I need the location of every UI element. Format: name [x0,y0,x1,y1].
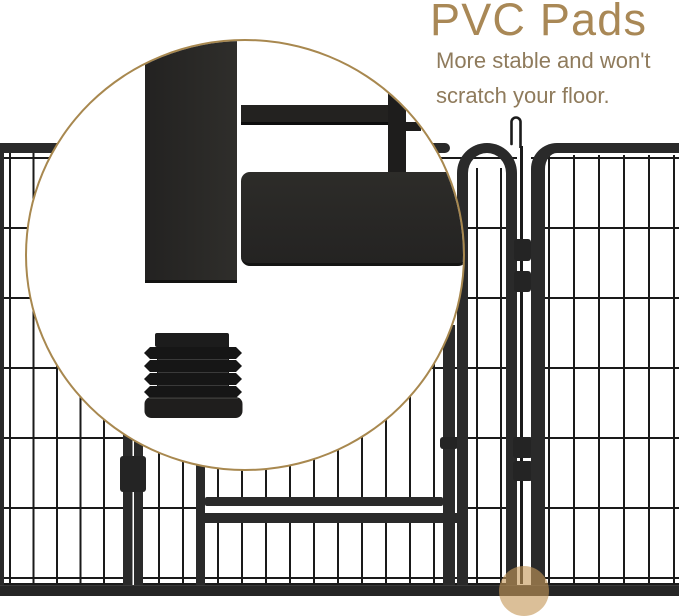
hinge-knuckle [514,271,531,292]
hinge-knuckle [513,437,533,458]
spine-panel-arch [457,143,517,585]
closeup-wire-stub [406,122,421,131]
hinge-sleeve [120,456,146,492]
door-threshold-rail [196,513,460,523]
feature-subtitle-line2: scratch your floor. [436,78,651,113]
hinge-knuckle [514,239,531,261]
feature-subtitle-line1: More stable and won't [436,43,651,78]
pad-location-dot [499,566,549,616]
hinge-knuckle [513,461,533,481]
closeup-top-wire [241,105,389,125]
closeup-leg-tube [145,41,237,283]
feature-heading: PVC Pads [430,0,647,42]
door-bottom-rail [205,497,443,506]
feature-subtitle: More stable and won't scratch your floor… [436,43,651,113]
hinge-pin [520,146,523,584]
door-hinge-sleeve [440,437,458,449]
magnifier-callout-circle [25,39,465,471]
left-edge-tube [0,143,4,596]
closeup-bottom-rail-tube [241,172,465,266]
hinge-pin-hook-icon [505,112,527,148]
door-right-jamb [443,325,455,585]
right-panel-frame [531,143,679,585]
closeup-side-wire [388,93,406,180]
pvc-pad-icon [144,333,243,419]
product-detail-image: PVC Pads More stable and won't scratch y… [0,0,679,616]
bottom-rail [0,585,679,596]
